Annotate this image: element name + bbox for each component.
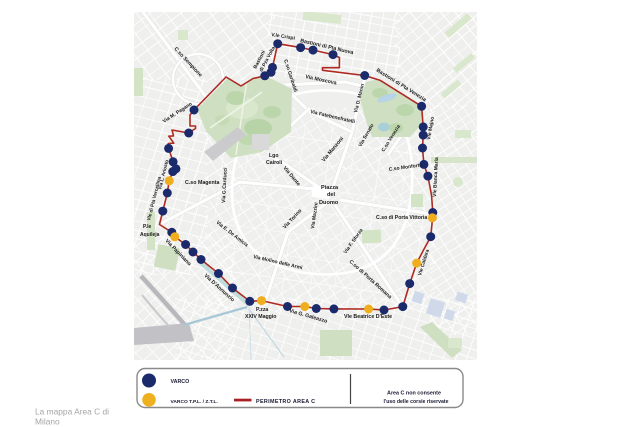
svg-text:Aquileja: Aquileja xyxy=(140,232,160,238)
svg-text:C.so di Porta Vittoria: C.so di Porta Vittoria xyxy=(376,215,427,221)
svg-text:La mappa Area C di: La mappa Area C di xyxy=(35,407,109,417)
svg-text:Lgo: Lgo xyxy=(269,153,279,159)
svg-text:C.so Magenta: C.so Magenta xyxy=(185,180,219,186)
svg-text:P.le: P.le xyxy=(143,224,151,230)
svg-text:l'uso delle corsie riservate: l'uso delle corsie riservate xyxy=(384,399,449,405)
svg-text:Vle Beatrice D'Este: Vle Beatrice D'Este xyxy=(344,314,392,320)
svg-text:del: del xyxy=(327,192,336,198)
svg-text:VARCO T.P.L. / Z.T.L.: VARCO T.P.L. / Z.T.L. xyxy=(171,399,219,405)
svg-text:Piazza: Piazza xyxy=(321,185,339,191)
svg-text:P.zza: P.zza xyxy=(256,307,268,313)
svg-text:Milano: Milano xyxy=(35,417,60,427)
svg-text:XXIV Maggio: XXIV Maggio xyxy=(245,314,276,320)
svg-text:Area C non consente: Area C non consente xyxy=(387,391,441,397)
svg-text:VARCO: VARCO xyxy=(171,379,190,385)
svg-text:PERIMETRO AREA C: PERIMETRO AREA C xyxy=(256,399,315,405)
svg-text:Duomo: Duomo xyxy=(319,200,339,206)
svg-text:Cairoli: Cairoli xyxy=(266,160,283,166)
